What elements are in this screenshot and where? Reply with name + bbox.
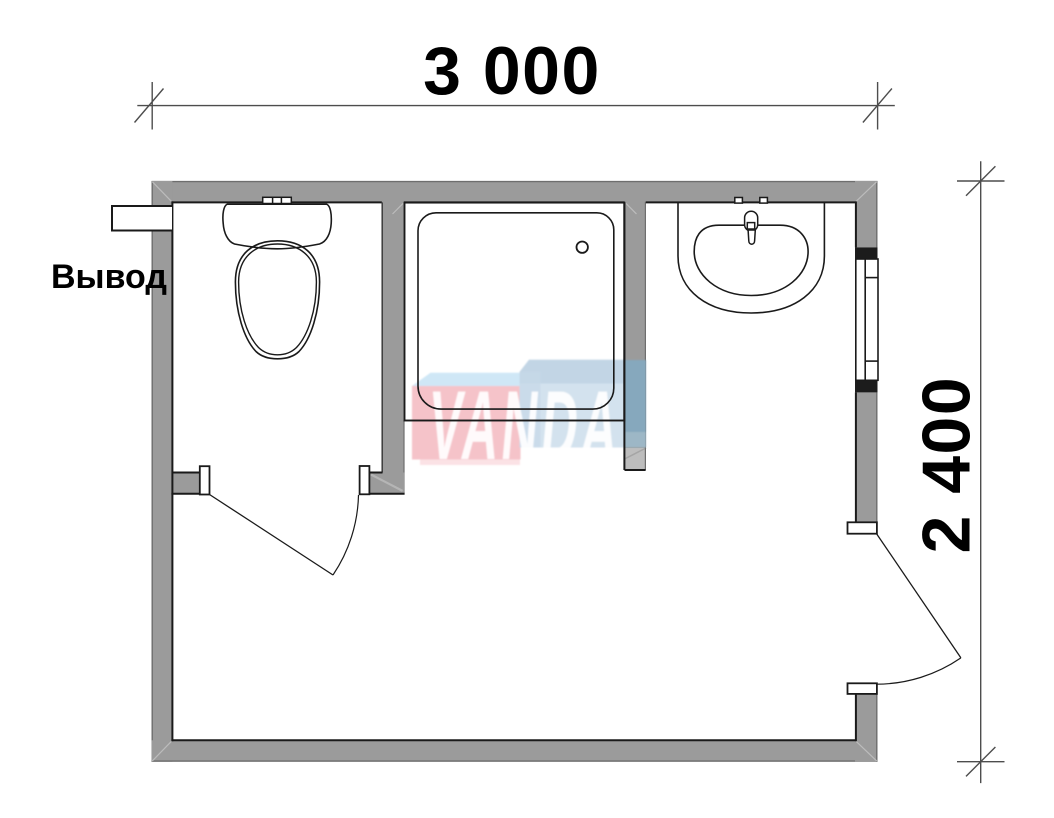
svg-text:VANDA: VANDA — [425, 370, 627, 481]
svg-text:2 400: 2 400 — [909, 376, 985, 554]
svg-text:3 000: 3 000 — [423, 33, 601, 109]
svg-text:Вывод: Вывод — [51, 258, 167, 296]
